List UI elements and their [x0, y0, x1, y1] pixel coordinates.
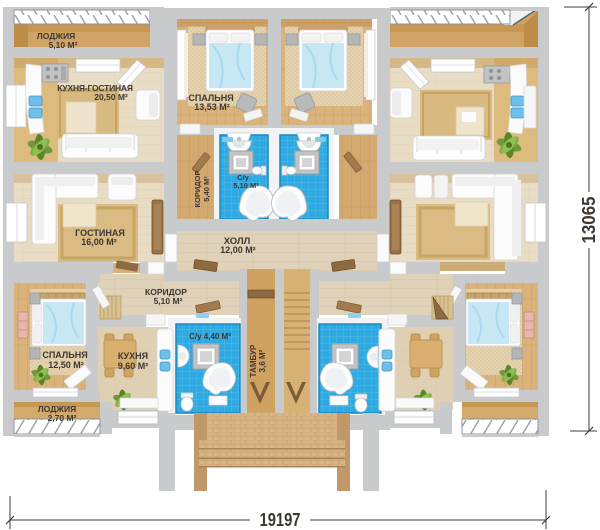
- svg-text:12,50 М²: 12,50 М²: [48, 360, 84, 370]
- svg-text:5,40 М²: 5,40 М²: [202, 176, 211, 202]
- svg-text:ТАМБУР: ТАМБУР: [249, 344, 258, 377]
- svg-text:20,50 М²: 20,50 М²: [94, 92, 128, 102]
- svg-text:9,60 М²: 9,60 М²: [118, 361, 149, 371]
- svg-text:5,10 М²: 5,10 М²: [233, 181, 259, 190]
- svg-text:16,00 М²: 16,00 М²: [81, 237, 117, 247]
- svg-text:СПАЛЬНЯ: СПАЛЬНЯ: [42, 350, 87, 360]
- svg-text:12,00 М²: 12,00 М²: [220, 245, 256, 255]
- svg-text:5,10 М²: 5,10 М²: [154, 296, 183, 306]
- svg-text:КУХНЯ: КУХНЯ: [118, 351, 148, 361]
- svg-text:13065: 13065: [579, 197, 599, 244]
- svg-text:5,10 М²: 5,10 М²: [49, 40, 78, 50]
- svg-text:3,6 М²: 3,6 М²: [258, 349, 267, 372]
- svg-text:13,53 М²: 13,53 М²: [194, 102, 230, 112]
- svg-text:2,70 М²: 2,70 М²: [48, 413, 77, 423]
- svg-text:С/у 4,40 М²: С/у 4,40 М²: [189, 332, 231, 341]
- svg-text:КОРИДОР: КОРИДОР: [193, 171, 202, 208]
- svg-text:19197: 19197: [260, 510, 301, 530]
